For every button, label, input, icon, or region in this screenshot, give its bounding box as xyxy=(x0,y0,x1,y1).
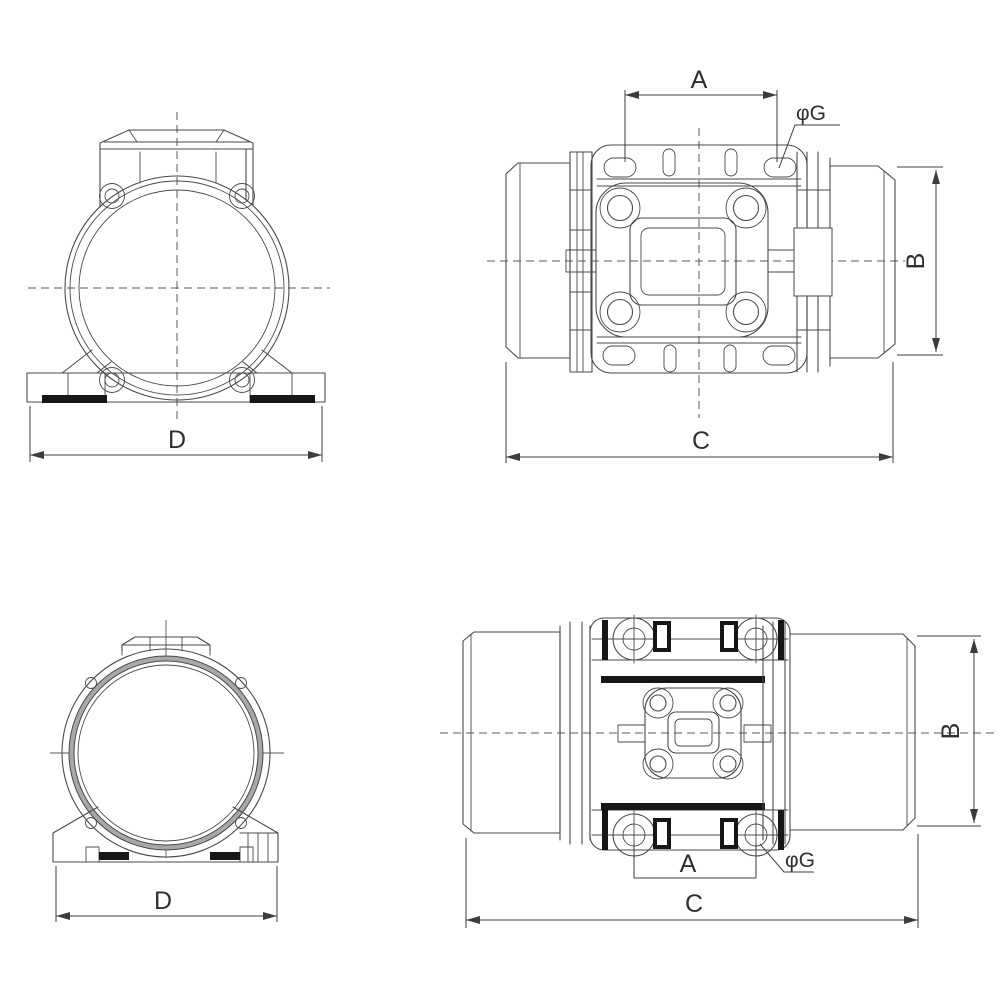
motor-housing xyxy=(590,618,790,850)
seal-slot xyxy=(655,820,669,847)
right-weight-cover xyxy=(830,166,895,358)
view-side-top: A φG B C xyxy=(487,66,943,463)
dimension-b-bottom: B xyxy=(917,636,981,826)
rubber-pad-left xyxy=(99,852,129,860)
dim-label-b-top: B xyxy=(902,253,930,270)
mount-hole-top-right xyxy=(764,158,796,177)
dimension-d-top: D xyxy=(30,406,322,462)
terminal-box-top-view xyxy=(794,228,832,296)
dim-label-d-bottom: D xyxy=(154,887,172,915)
dim-label-phig-bottom: φG xyxy=(785,849,815,872)
seal-slot xyxy=(722,623,736,650)
dimension-b-top: B xyxy=(897,167,943,355)
mount-hole-top-left xyxy=(604,158,636,177)
centerlines xyxy=(487,128,905,418)
dim-label-b-bottom: B xyxy=(937,723,965,740)
cover-screw xyxy=(86,818,97,829)
dimension-a-top: A xyxy=(625,66,777,162)
view-side-bottom: A φG B C xyxy=(440,615,995,928)
seal-slot xyxy=(655,623,669,650)
right-flange xyxy=(794,152,832,372)
cover-screw xyxy=(236,678,247,689)
dim-label-a-top: A xyxy=(691,66,708,94)
motor-body-circles xyxy=(62,649,270,857)
right-weight-cover xyxy=(790,634,915,830)
mount-hole-bottom-left xyxy=(603,346,635,365)
dim-label-a-bottom: A xyxy=(680,850,697,878)
gasket-strip xyxy=(601,676,765,683)
seal-slot xyxy=(722,820,736,847)
centerlines xyxy=(28,112,330,420)
dim-label-phig-top: φG xyxy=(796,102,826,125)
dim-label-c-top: C xyxy=(692,427,710,455)
mount-hole-bottom-right xyxy=(763,346,795,365)
left-flange xyxy=(570,152,592,372)
rubber-pad-right xyxy=(250,395,315,403)
dim-label-c-bottom: C xyxy=(685,890,703,918)
dimension-c-bottom: C xyxy=(466,834,918,928)
view-front-bottom: D xyxy=(50,620,284,922)
technical-drawing-page: D xyxy=(0,0,1000,1000)
center-flange xyxy=(566,183,800,337)
view-front-top: D xyxy=(27,112,330,462)
top-bolt-row xyxy=(601,615,784,683)
cover-screw xyxy=(86,678,97,689)
rubber-pad-left xyxy=(42,395,107,403)
vibration-motor-four-view-drawing: D xyxy=(0,0,1000,1000)
dimension-d-bottom: D xyxy=(56,866,277,922)
gasket-strip xyxy=(601,803,765,810)
dim-label-d-top: D xyxy=(168,426,186,454)
rubber-pad-right xyxy=(210,852,240,860)
dimension-phig-bottom: φG xyxy=(760,844,815,872)
cover-screw xyxy=(236,818,247,829)
